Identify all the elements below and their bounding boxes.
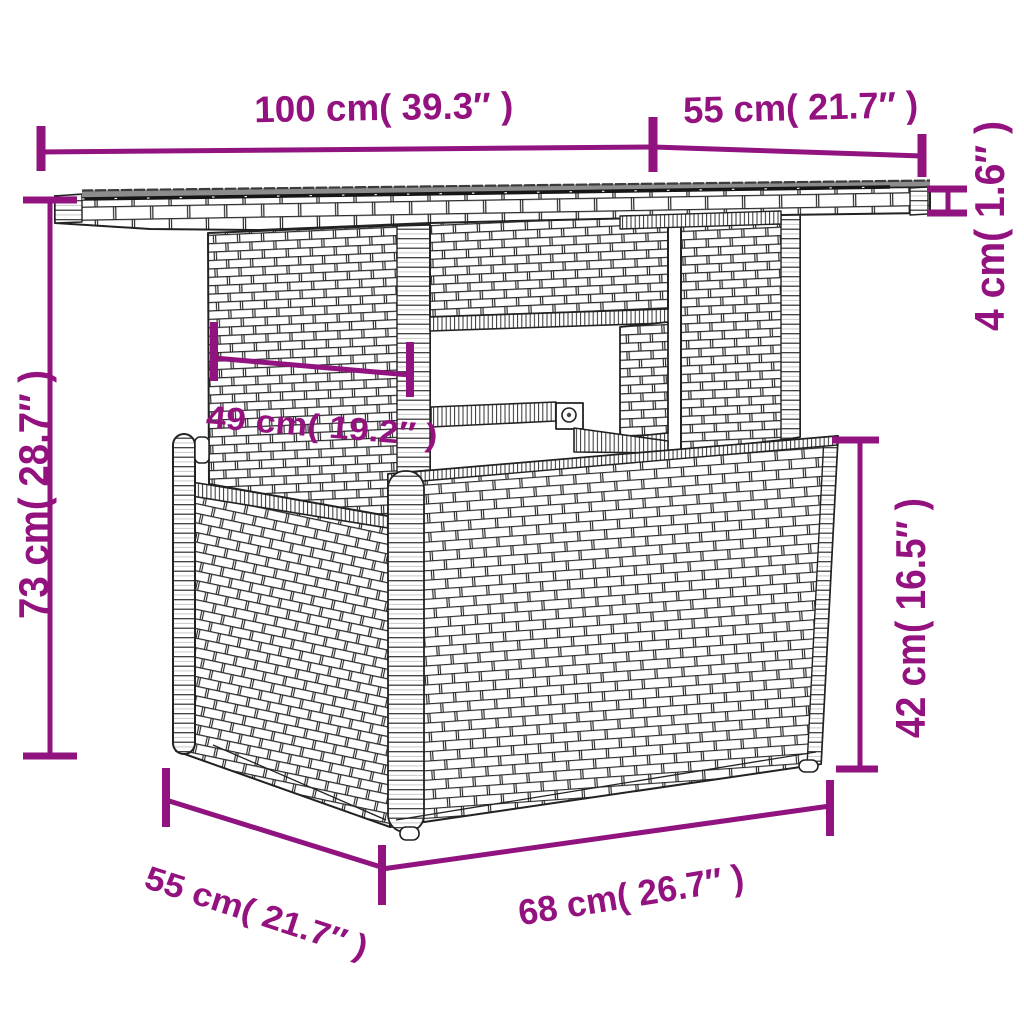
svg-text:4 cm( 1.6″ ): 4 cm( 1.6″ )	[966, 121, 1013, 331]
svg-text:73 cm( 28.7″ ): 73 cm( 28.7″ )	[10, 370, 57, 619]
svg-text:42 cm( 16.5″ ): 42 cm( 16.5″ )	[887, 498, 934, 738]
svg-text:55 cm( 21.7″ ): 55 cm( 21.7″ )	[683, 84, 919, 131]
svg-text:100 cm( 39.3″ ): 100 cm( 39.3″ )	[254, 85, 514, 131]
